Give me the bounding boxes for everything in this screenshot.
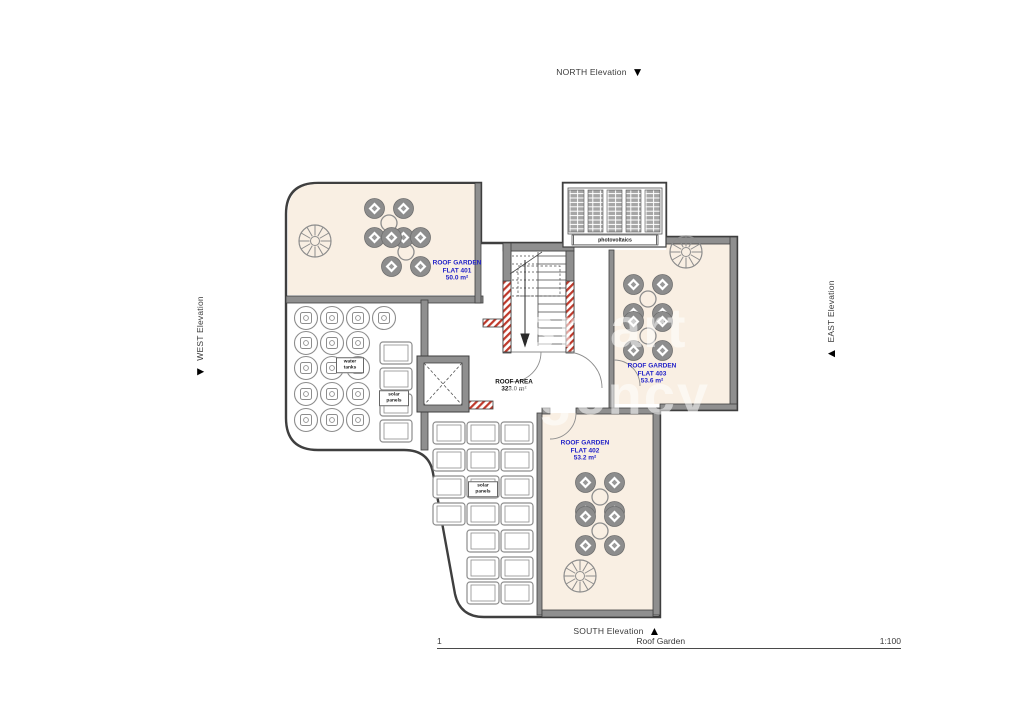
north-elevation-marker: NORTH Elevation ▼ [556,66,643,78]
solar-panel-icon [501,557,533,579]
flat-402-label: ROOF GARDEN FLAT 402 53.2 m² [561,440,610,463]
photovoltaics-label: photovoltaics [573,234,657,245]
water-tank-icon [347,332,370,355]
solar-panel-icon [501,422,533,444]
drawing-title: Roof Garden [442,636,880,646]
solar-panel-icon [467,422,499,444]
flat-401-label-line2: FLAT 401 [433,267,482,275]
solar-panel-icon [501,503,533,525]
water-tanks-label: water tanks [336,357,364,373]
water-tank-icon [295,357,318,380]
solar-panel-icon [380,420,412,442]
title-block: 1 Roof Garden 1:100 [437,636,901,649]
solar-panel-icon [467,530,499,552]
south-elevation-label: SOUTH Elevation [573,626,643,636]
solar-panel-icon [467,503,499,525]
flat-401-label-line3: 50.0 m² [433,275,482,283]
water-tank-icon [321,332,344,355]
roof-area-label-line1: ROOF AREA [495,379,533,386]
flat-401-label-line1: ROOF GARDEN [433,260,482,268]
solar-panel-icon [433,449,465,471]
solar-panel-icon [433,422,465,444]
solar-panel-icon [380,368,412,390]
solar-panel-icon [501,476,533,498]
water-tank-icon [321,383,344,406]
west-elevation-marker: ▼ WEST Elevation [194,296,206,378]
roof-area-label: ROOF AREA 323.0 m² [495,379,533,394]
east-elevation-label: EAST Elevation [826,280,836,342]
solar-panels-grid [433,422,533,604]
flat-403-label-line3: 53.6 m² [628,378,677,386]
solar-panel-icon [467,557,499,579]
flat-403-label: ROOF GARDEN FLAT 403 53.6 m² [628,363,677,386]
solar-panel-icon [467,582,499,604]
west-elevation-label: WEST Elevation [195,296,205,361]
solar-panel-icon [467,449,499,471]
water-tank-icon [295,307,318,330]
water-tank-icon [295,383,318,406]
solar-panel-icon [501,582,533,604]
solar-panel-icon [501,449,533,471]
flat-402-label-line1: ROOF GARDEN [561,440,610,448]
solar-panels-label: solar panels [468,481,498,497]
roof-plan-drawing [0,0,1024,705]
west-direction-icon: ▼ [194,366,206,378]
flat-402-label-line2: FLAT 402 [561,447,610,455]
water-tank-icon [321,307,344,330]
solar-panel-icon [433,476,465,498]
solar-panel-icon [501,530,533,552]
solar-panel-icon [380,342,412,364]
flat-403-label-line1: ROOF GARDEN [628,363,677,371]
drawing-sheet: smart agency ROOF GARDEN FLAT 401 50.0 m… [0,0,1024,705]
flat-403-label-line2: FLAT 403 [628,370,677,378]
water-tank-icon [295,332,318,355]
water-tank-icon [347,307,370,330]
roof-area-label-line2: 323.0 m² [495,386,533,393]
drawing-scale: 1:100 [880,636,901,646]
east-direction-icon: ▲ [825,348,837,360]
solar-panels-label: solar panels [379,390,409,406]
east-elevation-marker: ▲ EAST Elevation [825,280,837,359]
water-tank-icon [347,383,370,406]
north-direction-icon: ▼ [632,66,644,78]
north-elevation-label: NORTH Elevation [556,67,626,77]
water-tank-icon [347,409,370,432]
flat-401-label: ROOF GARDEN FLAT 401 50.0 m² [433,260,482,283]
water-tank-icon [295,409,318,432]
elevator-shaft [417,356,469,412]
water-tank-icon [321,409,344,432]
water-tank-icon [373,307,396,330]
flat-402-label-line3: 53.2 m² [561,455,610,463]
solar-panel-icon [433,503,465,525]
